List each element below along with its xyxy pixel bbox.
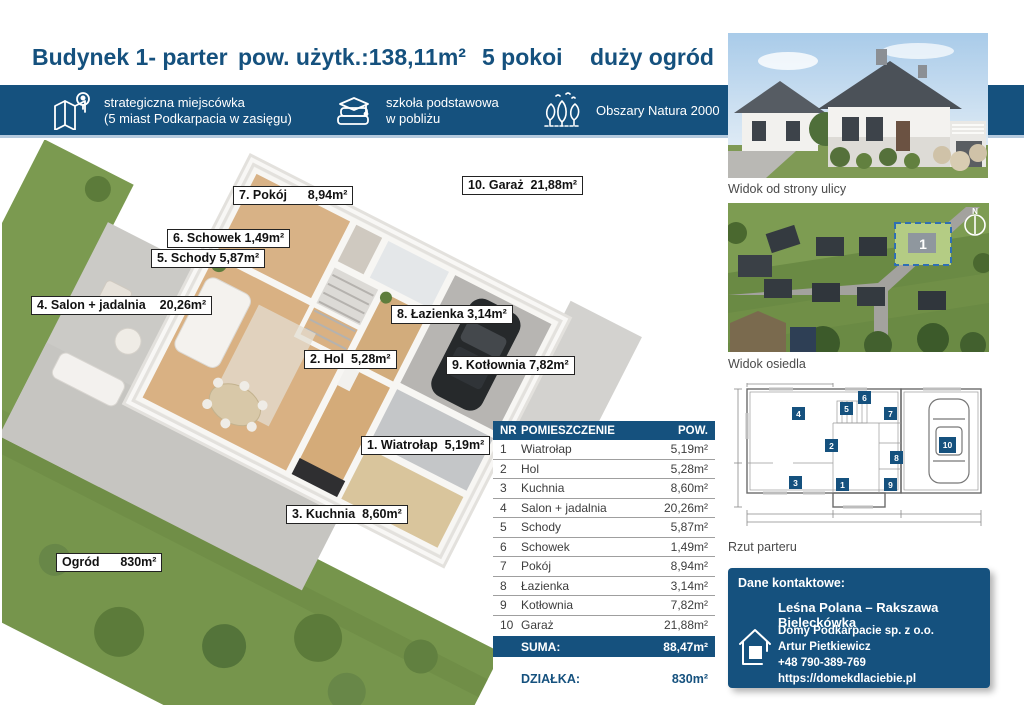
drawing-room-number: 2 bbox=[825, 439, 838, 452]
table-row: 8Łazienka3,14m² bbox=[493, 577, 715, 597]
rooms-count-text: 5 pokoi bbox=[482, 44, 563, 71]
drawing-room-number: 6 bbox=[858, 391, 871, 404]
suma-value: 88,47m² bbox=[653, 640, 715, 654]
table-row: 10Garaż21,88m² bbox=[493, 616, 715, 636]
table-row: 4Salon + jadalnia20,26m² bbox=[493, 499, 715, 519]
room-label-garaz: 10. Garaż 21,88m² bbox=[462, 176, 583, 195]
table-row: 9Kotłownia7,82m² bbox=[493, 596, 715, 616]
drawing-room-number: 9 bbox=[884, 478, 897, 491]
contact-phone: +48 790-389-769 bbox=[778, 655, 866, 671]
suma-label: SUMA: bbox=[521, 640, 653, 654]
usable-area-text: pow. użytk.:138,11m² bbox=[238, 44, 466, 71]
feature-school-line2: w pobliżu bbox=[386, 111, 499, 127]
dzialka-row: DZIAŁKA: 830m² bbox=[493, 670, 715, 688]
street-view-photo bbox=[728, 33, 988, 178]
col-header-name: POMIESZCZENIE bbox=[521, 425, 653, 437]
table-row: 5Schody5,87m² bbox=[493, 518, 715, 538]
room-label-lazienka: 8. Łazienka 3,14m² bbox=[391, 305, 513, 324]
page-title: Budynek 1- parter bbox=[32, 44, 228, 71]
feature-natura2000: Obszary Natura 2000 bbox=[542, 91, 720, 131]
room-label-schowek: 6. Schowek 1,49m² bbox=[167, 229, 290, 248]
garden-area-label: Ogród 830m² bbox=[56, 553, 162, 572]
suma-row: SUMA: 88,47m² bbox=[493, 636, 715, 657]
floorplan-drawing-svg bbox=[733, 383, 990, 530]
school-icon bbox=[332, 92, 376, 130]
table-row: 7Pokój8,94m² bbox=[493, 557, 715, 577]
dzialka-label: DZIAŁKA: bbox=[521, 672, 653, 686]
contact-company: Domy Podkarpacie sp. z o.o. bbox=[778, 623, 934, 639]
room-label-kotlownia: 9. Kotłownia 7,82m² bbox=[446, 356, 575, 375]
street-view-caption: Widok od strony ulicy bbox=[728, 182, 846, 196]
house-icon bbox=[736, 624, 774, 668]
table-row: 2Hol5,28m² bbox=[493, 460, 715, 480]
plot-number-label: 1 bbox=[919, 236, 927, 252]
aerial-view-photo: 1 N bbox=[728, 203, 989, 352]
room-label-wiatrolap: 1. Wiatrołap 5,19m² bbox=[361, 436, 490, 455]
room-label-pokoj: 7. Pokój 8,94m² bbox=[233, 186, 353, 205]
drawing-room-number: 7 bbox=[884, 407, 897, 420]
room-label-schody: 5. Schody 5,87m² bbox=[151, 249, 265, 268]
col-header-nr: NR bbox=[493, 425, 521, 437]
feature-location-line1: strategiczna miejscówka bbox=[104, 95, 292, 111]
rooms-table-body: 1Wiatrołap5,19m²2Hol5,28m²3Kuchnia8,60m²… bbox=[493, 440, 715, 635]
floorplan-drawing-caption: Rzut parteru bbox=[728, 540, 797, 554]
drawing-room-number: 1 bbox=[836, 478, 849, 491]
drawing-room-number: 8 bbox=[890, 451, 903, 464]
drawing-room-number: 10 bbox=[939, 437, 956, 453]
table-row: 1Wiatrołap5,19m² bbox=[493, 440, 715, 460]
contact-person: Artur Pietkiewicz bbox=[778, 639, 871, 655]
contact-box: Dane kontaktowe: Leśna Polana – Rakszawa… bbox=[728, 568, 990, 688]
room-label-kuchnia: 3. Kuchnia 8,60m² bbox=[286, 505, 408, 524]
floorplan-drawing: 12345678910 bbox=[733, 383, 990, 530]
rooms-table-header: NR POMIESZCZENIE POW. bbox=[493, 421, 715, 440]
contact-website[interactable]: https://domekdlaciebie.pl bbox=[778, 671, 916, 687]
room-label-salon: 4. Salon + jadalnia 20,26m² bbox=[31, 296, 212, 315]
feature-location-line2: (5 miast Podkarpacia w zasięgu) bbox=[104, 111, 292, 127]
table-row: 6Schowek1,49m² bbox=[493, 538, 715, 558]
aerial-view-caption: Widok osiedla bbox=[728, 357, 806, 371]
col-header-pow: POW. bbox=[653, 425, 715, 437]
feature-location: strategiczna miejscówka (5 miast Podkarp… bbox=[52, 91, 292, 131]
feature-natura2000-line1: Obszary Natura 2000 bbox=[596, 103, 720, 119]
flyer-page: Budynek 1- parter pow. użytk.:138,11m² 5… bbox=[0, 0, 1024, 724]
compass-n-label: N bbox=[972, 207, 978, 216]
contact-heading: Dane kontaktowe: bbox=[738, 576, 845, 590]
dzialka-value: 830m² bbox=[653, 672, 715, 686]
drawing-room-number: 3 bbox=[789, 476, 802, 489]
rooms-table: NR POMIESZCZENIE POW. 1Wiatrołap5,19m²2H… bbox=[493, 421, 715, 688]
trees-icon bbox=[542, 92, 584, 130]
map-pin-icon bbox=[52, 92, 94, 130]
drawing-room-number: 5 bbox=[840, 402, 853, 415]
drawing-room-number: 4 bbox=[792, 407, 805, 420]
garden-text: duży ogród bbox=[590, 44, 714, 71]
feature-school: szkoła podstawowa w pobliżu bbox=[332, 91, 499, 131]
room-label-hol: 2. Hol 5,28m² bbox=[304, 350, 397, 369]
feature-school-line1: szkoła podstawowa bbox=[386, 95, 499, 111]
table-row: 3Kuchnia8,60m² bbox=[493, 479, 715, 499]
